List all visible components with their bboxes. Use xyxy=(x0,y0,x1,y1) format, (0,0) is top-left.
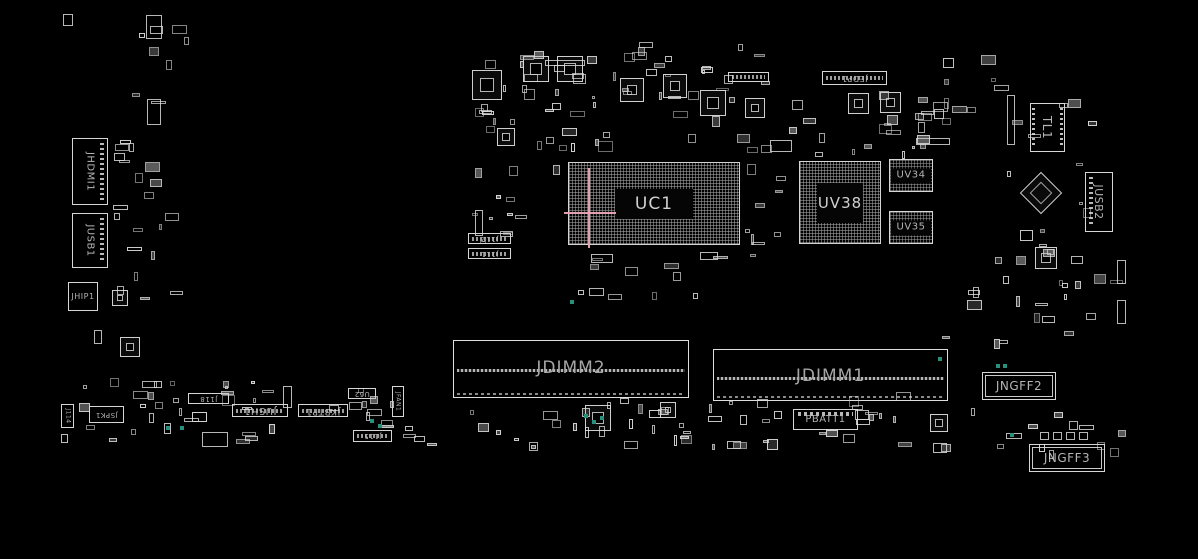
smd-part[interactable] xyxy=(1118,430,1126,437)
smd-part[interactable] xyxy=(886,130,901,135)
smd-part[interactable] xyxy=(623,91,632,95)
smd-part[interactable] xyxy=(531,445,536,449)
smd-part[interactable] xyxy=(503,85,506,92)
smd-part[interactable] xyxy=(114,213,120,220)
smd-part[interactable] xyxy=(761,145,772,153)
smd-part[interactable] xyxy=(537,141,542,150)
smd-part[interactable] xyxy=(503,232,513,235)
smd-part[interactable] xyxy=(179,408,182,416)
smd-part[interactable] xyxy=(712,444,715,450)
smd-part[interactable] xyxy=(573,423,577,431)
smd-part[interactable] xyxy=(729,97,735,103)
qfn-chip[interactable] xyxy=(700,90,726,116)
smd-part[interactable] xyxy=(659,92,662,100)
smd-part[interactable] xyxy=(757,399,768,408)
smd-part[interactable] xyxy=(679,423,684,428)
smd-part[interactable] xyxy=(524,74,538,82)
smd-part[interactable] xyxy=(716,88,729,91)
smd-part[interactable] xyxy=(762,419,770,423)
smd-part[interactable] xyxy=(607,402,611,409)
smd-part[interactable] xyxy=(133,228,143,232)
smd-part[interactable] xyxy=(747,147,758,153)
smd-part[interactable] xyxy=(708,416,722,422)
smd-part[interactable] xyxy=(83,385,87,389)
smd-part[interactable] xyxy=(144,192,154,199)
smd-part[interactable] xyxy=(515,215,527,219)
dimm-slot-jdimm1[interactable]: JDIMM1 xyxy=(713,349,948,401)
smd-part[interactable] xyxy=(510,119,515,125)
smd-part[interactable] xyxy=(1016,296,1020,307)
smd-part[interactable] xyxy=(496,430,501,435)
smd-part[interactable] xyxy=(1064,294,1067,300)
smd-part[interactable] xyxy=(242,407,252,410)
smd-part[interactable] xyxy=(135,173,143,183)
smd-part[interactable] xyxy=(819,432,826,435)
smd-part[interactable] xyxy=(1039,244,1047,247)
smd-part[interactable] xyxy=(1088,121,1097,126)
smd-part[interactable] xyxy=(165,213,179,221)
component-j114[interactable]: J114 xyxy=(61,404,74,428)
smd-part[interactable] xyxy=(113,205,128,210)
component-jngff2[interactable]: JNGFF2 xyxy=(982,372,1056,400)
smd-part[interactable] xyxy=(380,425,394,428)
smd-part[interactable] xyxy=(151,101,166,104)
smd-part[interactable] xyxy=(1110,448,1119,457)
smd-part[interactable] xyxy=(159,224,162,230)
smd-part[interactable] xyxy=(1042,316,1055,323)
smd-part[interactable] xyxy=(774,232,781,237)
smd-part[interactable] xyxy=(109,438,117,442)
smd-part[interactable] xyxy=(496,195,501,199)
smd-part[interactable] xyxy=(170,381,175,386)
smd-part[interactable] xyxy=(629,419,633,429)
smd-part[interactable] xyxy=(1076,163,1083,166)
smd-part[interactable] xyxy=(754,54,765,57)
smd-part[interactable] xyxy=(933,443,947,453)
smd-part[interactable] xyxy=(587,56,597,64)
smd-part[interactable] xyxy=(562,128,577,136)
smd-part[interactable] xyxy=(639,42,653,48)
component-pbatt1[interactable]: PBATT1 xyxy=(793,409,858,430)
smd-part[interactable] xyxy=(520,55,534,60)
smd-part[interactable] xyxy=(63,14,73,26)
smd-part[interactable] xyxy=(673,111,688,118)
smd-part[interactable] xyxy=(1083,208,1091,218)
smd-part[interactable] xyxy=(472,213,478,216)
smd-part[interactable] xyxy=(792,100,803,110)
smd-part[interactable] xyxy=(991,78,996,82)
smd-part[interactable] xyxy=(1094,274,1106,284)
smd-part[interactable] xyxy=(1040,229,1045,233)
smd-part[interactable] xyxy=(592,96,595,99)
smd-part[interactable] xyxy=(599,426,605,437)
smd-part[interactable] xyxy=(362,401,367,408)
smd-part[interactable] xyxy=(133,391,148,399)
smd-part[interactable] xyxy=(918,97,928,103)
component-j115[interactable]: J115 xyxy=(353,430,392,442)
smd-part[interactable] xyxy=(1049,450,1054,459)
smd-part[interactable] xyxy=(852,149,855,155)
smd-part[interactable] xyxy=(688,91,699,100)
qfn-chip[interactable] xyxy=(497,128,515,146)
smd-part[interactable] xyxy=(713,256,728,259)
smd-part[interactable] xyxy=(134,272,138,281)
smd-part[interactable] xyxy=(652,425,655,434)
smd-part[interactable] xyxy=(120,140,131,144)
smd-part[interactable] xyxy=(1028,134,1041,138)
smd-part[interactable] xyxy=(673,272,681,281)
smd-part[interactable] xyxy=(572,73,584,79)
smd-part[interactable] xyxy=(665,74,671,77)
smd-part[interactable] xyxy=(624,441,638,449)
smd-part[interactable] xyxy=(613,72,616,81)
smd-part[interactable] xyxy=(789,127,797,134)
smd-part[interactable] xyxy=(242,432,256,436)
smd-part[interactable] xyxy=(646,69,657,76)
smd-part[interactable] xyxy=(150,26,163,34)
smd-part[interactable] xyxy=(668,96,681,99)
smd-part[interactable] xyxy=(149,413,154,423)
smd-part[interactable] xyxy=(522,85,527,93)
smd-part[interactable] xyxy=(543,411,558,420)
component-jush1[interactable]: JUSH1 xyxy=(232,404,288,417)
smd-part[interactable] xyxy=(775,190,783,193)
smd-part[interactable] xyxy=(172,25,187,34)
smd-part[interactable] xyxy=(971,408,975,416)
smd-part[interactable] xyxy=(755,203,765,208)
smd-part[interactable] xyxy=(142,381,157,388)
smd-part[interactable] xyxy=(251,381,255,384)
smd-part[interactable] xyxy=(590,264,599,270)
smd-part[interactable] xyxy=(1047,249,1054,255)
smd-part[interactable] xyxy=(545,109,554,112)
smd-part[interactable] xyxy=(981,55,996,65)
smd-part[interactable] xyxy=(506,197,515,202)
smd-part[interactable] xyxy=(944,79,949,85)
bga-uv38[interactable]: UV38 xyxy=(799,161,881,244)
smd-part[interactable] xyxy=(262,390,274,393)
smd-part[interactable] xyxy=(552,420,561,428)
smd-part[interactable] xyxy=(815,152,823,157)
smd-part[interactable] xyxy=(920,144,926,149)
smd-part[interactable] xyxy=(898,442,912,447)
smd-part[interactable] xyxy=(1006,433,1022,439)
smd-part[interactable] xyxy=(740,415,747,425)
smd-part[interactable] xyxy=(155,402,163,409)
smd-part[interactable] xyxy=(470,410,474,415)
smd-part[interactable] xyxy=(952,106,967,113)
smd-part[interactable] xyxy=(1016,256,1026,265)
smd-part[interactable] xyxy=(150,179,162,187)
smd-part[interactable] xyxy=(329,405,339,411)
smd-part[interactable] xyxy=(140,297,150,300)
smd-part[interactable] xyxy=(1110,280,1123,284)
smd-part[interactable] xyxy=(967,107,976,113)
smd-part[interactable] xyxy=(879,413,882,419)
smd-part[interactable] xyxy=(390,401,394,408)
smd-part[interactable] xyxy=(269,424,275,434)
component-jhip1[interactable]: JHIP1 xyxy=(68,282,98,311)
smd-part[interactable] xyxy=(480,241,486,244)
smd-part[interactable] xyxy=(132,93,140,97)
smd-part[interactable] xyxy=(738,44,743,51)
smd-part[interactable] xyxy=(879,91,889,100)
smd-part[interactable] xyxy=(724,75,733,84)
smd-part[interactable] xyxy=(553,165,560,175)
smd-part[interactable] xyxy=(592,258,603,261)
smd-part[interactable] xyxy=(999,340,1008,344)
smd-part[interactable] xyxy=(884,123,891,126)
smd-part[interactable] xyxy=(747,164,756,175)
component-uv34[interactable]: UV34 xyxy=(889,159,933,192)
boardview-canvas[interactable]: JHDMI1JUSB1JHIP1J114JSPK1J118JUSH1JKBTP1… xyxy=(0,0,1198,559)
smd-part[interactable] xyxy=(475,168,482,178)
smd-part[interactable] xyxy=(370,396,378,404)
smd-part[interactable] xyxy=(994,85,1009,91)
smd-part[interactable] xyxy=(774,411,782,419)
smd-part[interactable] xyxy=(973,287,979,298)
smd-part[interactable] xyxy=(995,257,1002,264)
smd-part[interactable] xyxy=(893,416,896,423)
smd-part[interactable] xyxy=(117,286,124,295)
smd-part[interactable] xyxy=(589,288,604,296)
smd-part[interactable] xyxy=(61,434,68,443)
smd-part[interactable] xyxy=(173,398,179,403)
smd-part[interactable] xyxy=(1069,421,1078,430)
smd-part[interactable] xyxy=(1039,444,1045,452)
smd-part[interactable] xyxy=(140,404,146,408)
smd-part[interactable] xyxy=(1079,425,1094,430)
smd-part[interactable] xyxy=(598,141,613,152)
smd-part[interactable] xyxy=(1097,442,1105,450)
smd-part[interactable] xyxy=(236,439,250,444)
smd-part[interactable] xyxy=(620,398,629,404)
smd-part[interactable] xyxy=(253,398,256,403)
smd-part[interactable] xyxy=(917,135,930,144)
smd-part[interactable] xyxy=(688,134,696,143)
qfn-chip[interactable] xyxy=(848,93,869,114)
smd-part[interactable] xyxy=(1003,276,1009,284)
smd-part[interactable] xyxy=(1062,283,1068,288)
smd-part[interactable] xyxy=(489,217,493,220)
smd-part[interactable] xyxy=(222,395,235,406)
smd-part[interactable] xyxy=(509,166,518,176)
component-jspk1[interactable]: JSPK1 xyxy=(89,406,124,423)
smd-part[interactable] xyxy=(1020,230,1033,241)
smd-part[interactable] xyxy=(603,132,610,138)
smd-part[interactable] xyxy=(166,60,172,70)
smd-part[interactable] xyxy=(349,402,362,410)
smd-part[interactable] xyxy=(1071,256,1083,264)
smd-part[interactable] xyxy=(1053,432,1062,440)
component-jusb2[interactable]: JUSB2 xyxy=(1085,172,1113,232)
smd-part[interactable] xyxy=(1054,412,1063,418)
component-jedp1[interactable]: JEDP1 xyxy=(822,71,887,85)
smd-part[interactable] xyxy=(776,176,786,181)
smd-part[interactable] xyxy=(1068,99,1081,108)
smd-part[interactable] xyxy=(139,33,145,38)
smd-part[interactable] xyxy=(486,126,495,133)
smd-part[interactable] xyxy=(114,153,125,161)
component-jhdmi1[interactable]: JHDMI1 xyxy=(72,138,108,205)
smd-part[interactable] xyxy=(514,438,519,441)
smd-part[interactable] xyxy=(632,52,647,60)
smd-part[interactable] xyxy=(534,51,544,59)
smd-part[interactable] xyxy=(1117,300,1126,324)
smd-part[interactable] xyxy=(170,291,183,295)
smd-part[interactable] xyxy=(358,388,364,393)
smd-part[interactable] xyxy=(767,439,778,450)
highlight-crosshair-vertical xyxy=(588,168,590,248)
smd-part[interactable] xyxy=(865,412,878,415)
smd-part[interactable] xyxy=(1007,171,1011,177)
bga-uc1[interactable]: UC1 xyxy=(568,162,740,245)
component-jusb1[interactable]: JUSB1 xyxy=(72,213,108,268)
smd-part[interactable] xyxy=(737,134,750,143)
smd-part[interactable] xyxy=(944,98,949,109)
smd-part[interactable] xyxy=(625,267,638,276)
smd-part[interactable] xyxy=(819,133,825,143)
smd-part[interactable] xyxy=(482,111,494,115)
smd-part[interactable] xyxy=(693,293,698,299)
smd-part[interactable] xyxy=(578,290,584,295)
smd-part[interactable] xyxy=(115,144,129,151)
rotated-chip[interactable] xyxy=(1020,172,1062,214)
smd-part[interactable] xyxy=(202,432,228,447)
smd-part[interactable] xyxy=(149,47,159,56)
smd-part[interactable] xyxy=(712,116,720,127)
qfn-chip[interactable] xyxy=(472,70,502,100)
smd-part[interactable] xyxy=(997,444,1004,449)
smd-part[interactable] xyxy=(1059,103,1068,108)
component-jkbtp1[interactable]: JKBTP1 xyxy=(298,404,348,417)
smd-part[interactable] xyxy=(184,418,199,422)
smd-part[interactable] xyxy=(79,403,90,412)
smd-part[interactable] xyxy=(546,137,554,144)
smd-part[interactable] xyxy=(554,65,565,72)
smd-part[interactable] xyxy=(608,294,622,300)
smd-part[interactable] xyxy=(674,435,677,446)
smd-part[interactable] xyxy=(683,431,691,434)
smd-part[interactable] xyxy=(585,427,589,438)
smd-part[interactable] xyxy=(921,111,934,115)
smd-part[interactable] xyxy=(652,292,657,300)
smd-part[interactable] xyxy=(967,300,982,310)
smd-part[interactable] xyxy=(493,118,496,125)
smd-part[interactable] xyxy=(129,143,134,152)
smd-part[interactable] xyxy=(1086,313,1096,320)
smd-part[interactable] xyxy=(595,139,599,146)
smd-part[interactable] xyxy=(571,143,575,152)
smd-part[interactable] xyxy=(912,146,915,149)
component-uv35[interactable]: UV35 xyxy=(889,211,933,244)
smd-part[interactable] xyxy=(745,229,750,233)
smd-part[interactable] xyxy=(733,442,747,449)
smd-part[interactable] xyxy=(680,436,689,439)
component-j111[interactable]: J111 xyxy=(468,248,511,259)
smd-part[interactable] xyxy=(507,213,513,216)
smd-part[interactable] xyxy=(478,423,489,432)
smd-part[interactable] xyxy=(649,410,661,418)
smd-part[interactable] xyxy=(1064,331,1074,336)
smd-part[interactable] xyxy=(1040,432,1049,440)
smd-part[interactable] xyxy=(148,392,154,400)
smd-part[interactable] xyxy=(559,145,567,151)
smd-part[interactable] xyxy=(665,56,672,62)
smd-part[interactable] xyxy=(1012,120,1023,125)
smd-part[interactable] xyxy=(664,263,679,269)
smd-part[interactable] xyxy=(729,401,733,405)
smd-part[interactable] xyxy=(918,122,925,133)
smd-part[interactable] xyxy=(942,336,950,339)
qfn-chip[interactable] xyxy=(663,74,687,98)
component-label-j-small-header xyxy=(729,73,768,81)
smd-part[interactable] xyxy=(826,430,838,437)
smd-part[interactable] xyxy=(701,67,713,73)
smd-part[interactable] xyxy=(283,386,292,408)
smd-part[interactable] xyxy=(709,404,712,413)
smd-part[interactable] xyxy=(110,378,119,387)
smd-part[interactable] xyxy=(520,61,524,68)
smd-part[interactable] xyxy=(403,434,416,438)
smd-part[interactable] xyxy=(570,111,585,117)
smd-part[interactable] xyxy=(942,118,951,125)
smd-part[interactable] xyxy=(593,102,596,108)
smd-part[interactable] xyxy=(427,443,437,446)
smd-part[interactable] xyxy=(545,60,585,66)
smd-part[interactable] xyxy=(1079,202,1083,205)
smd-part[interactable] xyxy=(485,60,496,69)
smd-part[interactable] xyxy=(1079,432,1088,440)
smd-part[interactable] xyxy=(761,81,770,85)
via-dot xyxy=(1003,364,1007,368)
smd-part[interactable] xyxy=(864,144,872,149)
smd-part[interactable] xyxy=(184,37,189,45)
smd-part[interactable] xyxy=(405,426,413,431)
qfn-chip[interactable] xyxy=(745,98,765,118)
smd-part[interactable] xyxy=(896,392,911,401)
smd-part[interactable] xyxy=(1075,281,1081,289)
smd-part[interactable] xyxy=(1066,432,1075,440)
smd-part[interactable] xyxy=(843,434,855,443)
smd-part[interactable] xyxy=(1028,424,1038,429)
component-label-tl1: TL1 xyxy=(1024,111,1071,144)
smd-part[interactable] xyxy=(127,247,142,251)
component-label-jedp1: JEDP1 xyxy=(823,72,886,84)
smd-part[interactable] xyxy=(131,429,136,435)
smd-part[interactable] xyxy=(654,63,665,68)
qfn-chip[interactable] xyxy=(120,337,140,357)
smd-part[interactable] xyxy=(943,58,954,68)
smd-part[interactable] xyxy=(751,234,754,245)
smd-part[interactable] xyxy=(555,89,559,96)
smd-part[interactable] xyxy=(902,151,905,159)
qfn-chip[interactable] xyxy=(930,414,948,432)
smd-part[interactable] xyxy=(223,381,229,388)
smd-part[interactable] xyxy=(1035,303,1048,306)
smd-part[interactable] xyxy=(1034,313,1040,323)
smd-part[interactable] xyxy=(94,330,102,344)
smd-part[interactable] xyxy=(638,404,643,414)
dimm-slot-jdimm2[interactable]: JDIMM2 xyxy=(453,340,689,398)
smd-part[interactable] xyxy=(151,251,155,260)
smd-part[interactable] xyxy=(86,425,95,430)
smd-part[interactable] xyxy=(770,140,792,152)
smd-part[interactable] xyxy=(145,162,160,172)
component-tl1[interactable]: TL1 xyxy=(1030,103,1065,152)
smd-part[interactable] xyxy=(803,118,816,124)
smd-part[interactable] xyxy=(750,254,756,257)
